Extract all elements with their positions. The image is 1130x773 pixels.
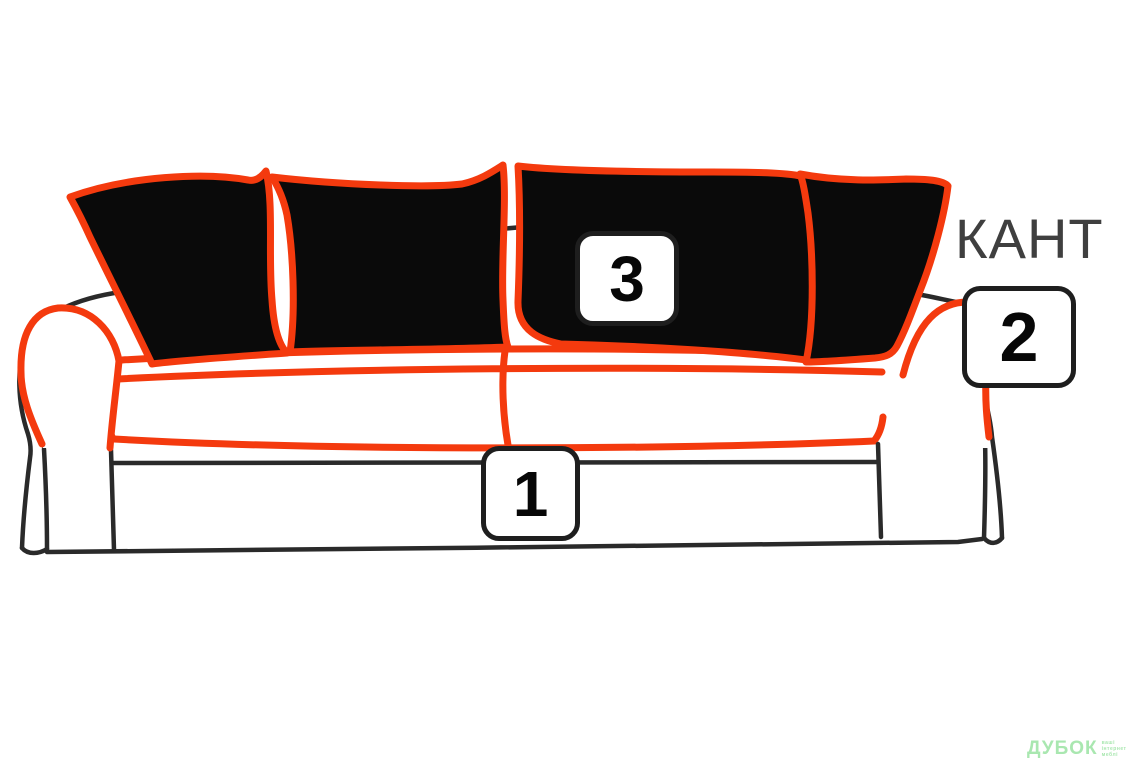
left-arm	[19, 292, 121, 553]
zone-badge-base: 1	[481, 446, 580, 541]
left-skirt-foot	[22, 548, 47, 553]
watermark-brand: ДУБОК	[1027, 738, 1098, 760]
back-pillows	[70, 165, 948, 364]
seat-front-bottom-edge-line	[110, 414, 883, 448]
watermark-tagline-line: меблі	[1102, 752, 1127, 758]
zone-badge-pillows-number: 3	[609, 247, 645, 311]
sofa-line-art	[0, 0, 1130, 773]
zone-badge-base-number: 1	[513, 462, 549, 526]
seat-cushions	[110, 349, 883, 448]
kant-label: КАНТ	[955, 206, 1104, 271]
zone-badge-kant: 2	[962, 286, 1076, 388]
base-left-edge	[111, 450, 114, 550]
zone-badge-kant-number: 2	[1000, 302, 1039, 372]
watermark-tagline: ваші інтернет меблі	[1102, 740, 1127, 758]
sofa-fabric-zones-figure: 1 2 3 КАНТ ДУБОК ваші інтернет меблі	[0, 0, 1130, 773]
left-skirt-fold	[44, 449, 47, 549]
pillow-2	[272, 165, 508, 352]
base-right-edge	[878, 444, 881, 537]
right-skirt-foot	[984, 538, 1002, 543]
watermark: ДУБОК ваші інтернет меблі	[1027, 738, 1127, 760]
zone-badge-pillows: 3	[575, 231, 679, 326]
seat-cushion-divider	[503, 351, 508, 445]
right-skirt-fold	[984, 440, 985, 538]
